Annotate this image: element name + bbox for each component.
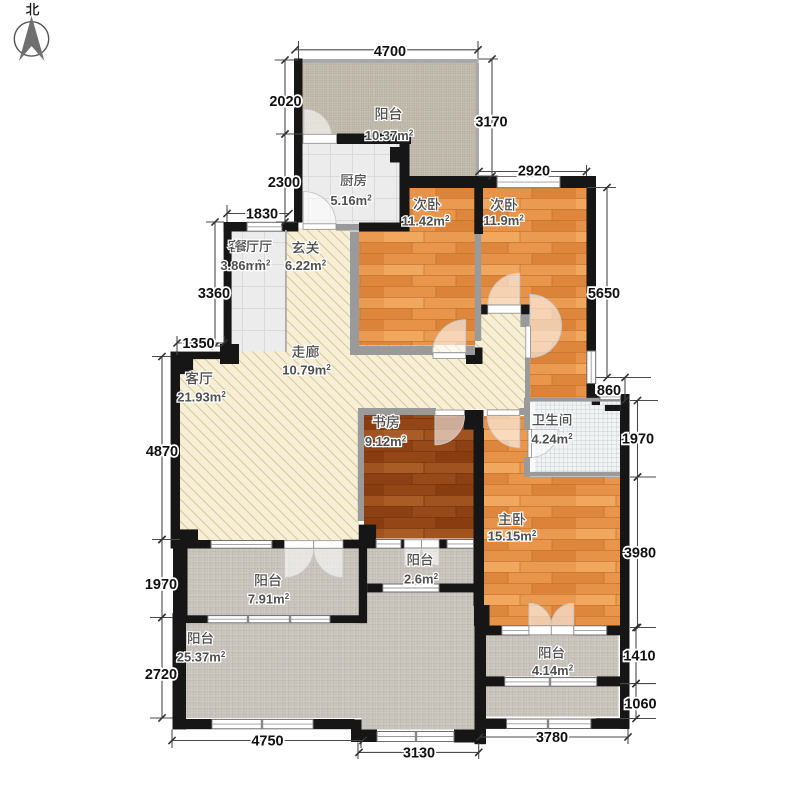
svg-text:7.91m2: 7.91m2 [248,592,290,607]
svg-text:11.42m2: 11.42m2 [402,214,450,229]
svg-text:1970: 1970 [622,432,654,448]
svg-text:860: 860 [597,383,621,399]
svg-text:4.14m2: 4.14m2 [532,663,574,678]
svg-text:6.22m2: 6.22m2 [285,258,327,273]
svg-text:1410: 1410 [623,649,655,665]
svg-text:2300: 2300 [268,175,300,191]
svg-text:3980: 3980 [624,546,656,562]
svg-text:2920: 2920 [518,164,550,180]
svg-text:5650: 5650 [588,286,620,302]
svg-text:1350: 1350 [182,336,214,352]
svg-text:4870: 4870 [146,444,178,460]
svg-text:11.9m2: 11.9m2 [483,213,524,228]
svg-text:2720: 2720 [145,667,177,683]
svg-text:2020: 2020 [269,94,301,110]
svg-text:1060: 1060 [624,697,656,713]
svg-text:10.37m2: 10.37m2 [365,128,414,143]
svg-text:15.15m2: 15.15m2 [488,529,537,544]
svg-text:21.93m2: 21.93m2 [177,390,226,405]
svg-text:25.37m2: 25.37m2 [177,650,226,665]
svg-text:10.79m2: 10.79m2 [282,363,331,378]
svg-text:3130: 3130 [403,746,435,762]
svg-text:9.12m2: 9.12m2 [365,434,407,449]
svg-text:4700: 4700 [374,44,406,60]
svg-text:3170: 3170 [475,115,507,131]
svg-text:1830: 1830 [246,207,278,223]
svg-text:4.24m2: 4.24m2 [531,431,573,446]
svg-text:4750: 4750 [251,734,283,750]
svg-text:1970: 1970 [145,577,177,593]
svg-text:3360: 3360 [198,286,230,302]
svg-text:2.6m2: 2.6m2 [404,572,439,587]
svg-text:3780: 3780 [536,730,568,746]
svg-text:5.16m2: 5.16m2 [330,193,372,208]
